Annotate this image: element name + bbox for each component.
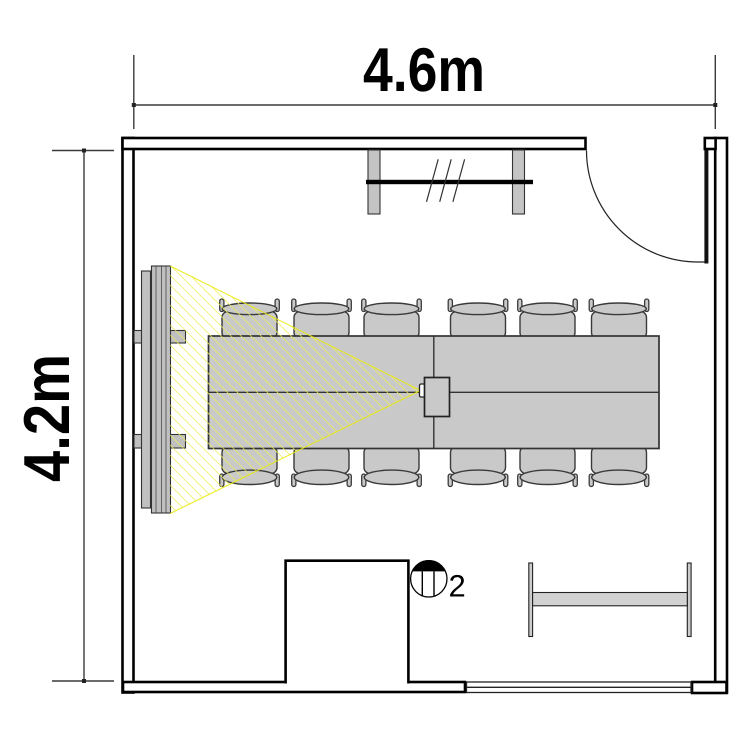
svg-text:2: 2 [448,569,465,604]
svg-text:4.2m: 4.2m [10,354,83,482]
svg-text:4.6m: 4.6m [363,36,485,105]
